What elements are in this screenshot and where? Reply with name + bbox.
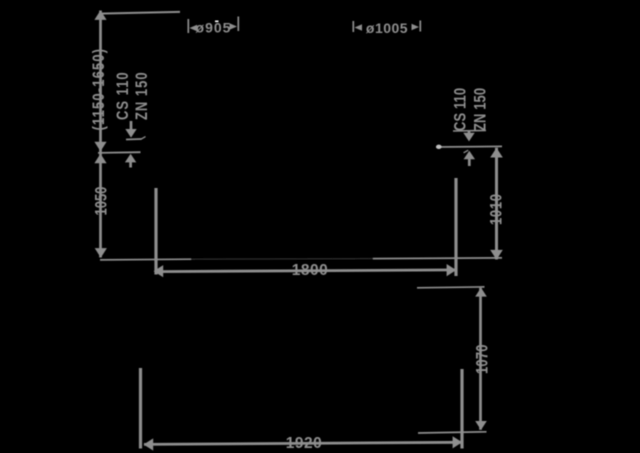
svg-text:ZN 150: ZN 150 <box>134 71 152 120</box>
svg-text:1070: 1070 <box>473 344 492 374</box>
svg-text:CS 110: CS 110 <box>115 71 133 120</box>
svg-text:1050: 1050 <box>92 187 111 216</box>
svg-text:1010: 1010 <box>487 193 506 225</box>
svg-text:CS 110: CS 110 <box>452 88 470 131</box>
svg-text:ø1005: ø1005 <box>366 20 408 36</box>
svg-text:ZN 150: ZN 150 <box>472 88 490 131</box>
svg-text:1800: 1800 <box>292 262 328 279</box>
svg-text:1920: 1920 <box>286 435 322 452</box>
svg-text:(1150-1650): (1150-1650) <box>89 48 108 131</box>
svg-text:ø905: ø905 <box>196 20 232 36</box>
